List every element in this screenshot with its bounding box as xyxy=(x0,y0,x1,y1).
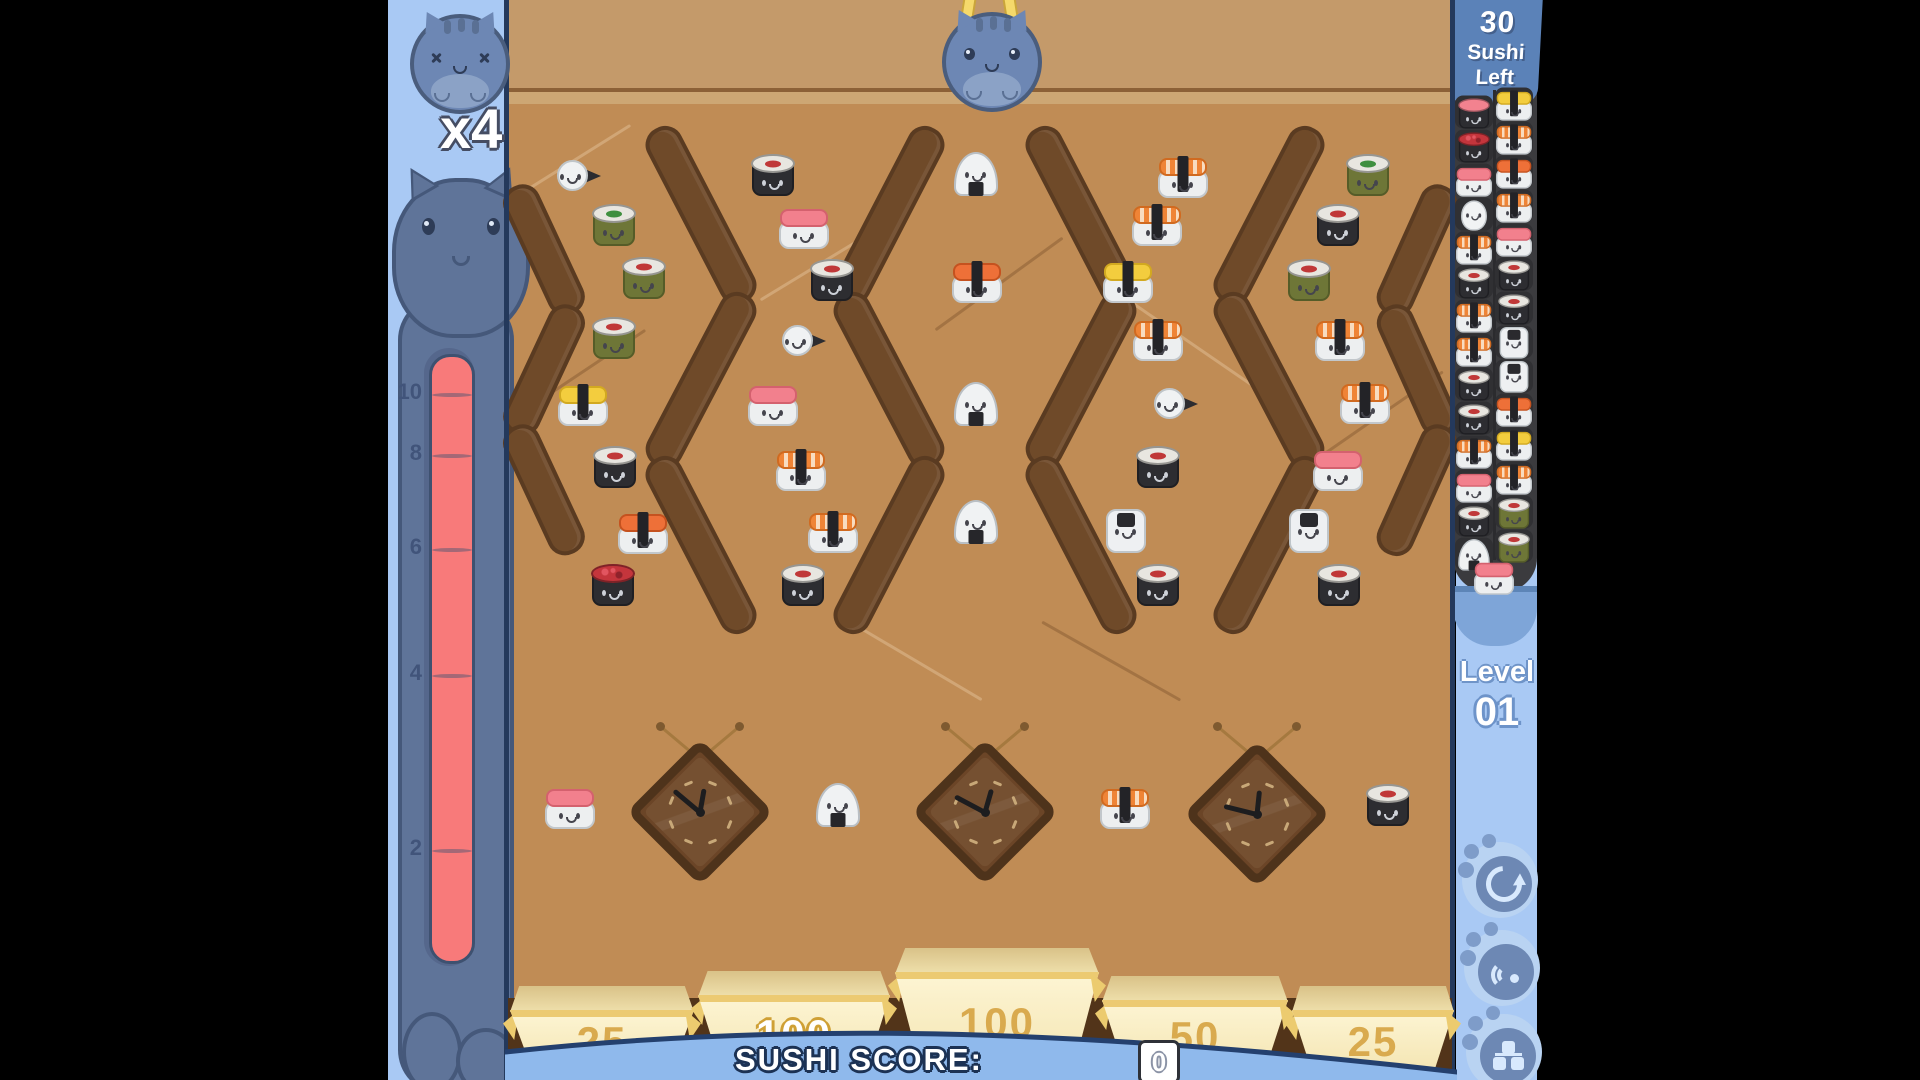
sushi-maki-green-r xyxy=(621,257,667,299)
clock-numeral-mark xyxy=(708,781,717,787)
clock-string-knob xyxy=(1213,722,1222,731)
clock-numeral-mark xyxy=(1241,840,1250,846)
sushi-left-label-2: Left xyxy=(1450,65,1539,90)
queue-item xyxy=(1495,394,1533,427)
sushi-nigiri-ebi xyxy=(1497,465,1530,495)
sushi-nigiri-ebi xyxy=(1342,382,1388,424)
sushi-maki-dark xyxy=(750,154,796,196)
cat-mouth xyxy=(985,64,999,72)
paw-bean xyxy=(1486,1006,1500,1020)
sushi-maki-green-g xyxy=(591,204,637,246)
clock-numeral-mark xyxy=(1283,798,1289,807)
cat-eye-icon xyxy=(964,48,975,60)
cat-mouth xyxy=(452,256,470,266)
queue-item xyxy=(1495,258,1533,291)
paw-pad xyxy=(1478,944,1534,1000)
sushi-nigiri-ebi xyxy=(1135,319,1181,361)
bucket-opening xyxy=(510,986,694,1012)
clock-string-knob xyxy=(735,722,744,731)
sushi-nigiri-ebi xyxy=(1457,303,1490,333)
sushi-nigiri-tamago xyxy=(560,384,606,426)
sushi-maki-dark xyxy=(1316,564,1362,606)
queue-item xyxy=(1495,462,1533,495)
clock-numeral-mark xyxy=(993,838,1002,844)
clock-numeral-mark xyxy=(684,781,693,787)
sushi-squid xyxy=(1497,329,1530,359)
sushi-squid xyxy=(1286,511,1332,553)
clock-face xyxy=(942,769,1028,855)
paw-bean xyxy=(1462,1034,1478,1050)
sushi-nigiri-orange xyxy=(1497,397,1530,427)
queue-item xyxy=(1495,496,1533,529)
bucket-opening xyxy=(1292,986,1454,1012)
sushi-maki-dark xyxy=(1365,784,1411,826)
queue-item xyxy=(1455,436,1493,469)
clock-center xyxy=(696,808,705,817)
sushi-nigiri-ebi xyxy=(1134,204,1180,246)
clock-numeral-mark xyxy=(1265,783,1274,789)
blocks-button[interactable] xyxy=(1464,1012,1544,1080)
clock-numeral-mark xyxy=(1226,822,1232,831)
sushi-maki-green-r xyxy=(1497,499,1530,529)
cat-eye-icon xyxy=(1009,48,1020,60)
queue-item xyxy=(1455,368,1493,401)
clock-numeral-mark xyxy=(669,796,675,805)
restart-button[interactable] xyxy=(1460,840,1540,920)
clock-numeral-mark xyxy=(684,838,693,844)
sushi-nigiri-ebi xyxy=(1317,319,1363,361)
sushi-temaki xyxy=(1152,384,1198,426)
cat-stripe xyxy=(990,16,997,30)
bucket-opening xyxy=(895,948,1099,974)
meter-tick-line xyxy=(432,674,472,678)
sushi-maki-dark xyxy=(1497,295,1530,325)
queue-item xyxy=(1455,470,1493,503)
queue-item xyxy=(1455,130,1493,163)
paw-bean xyxy=(1468,1016,1483,1031)
sushi-maki-dark xyxy=(1497,261,1530,291)
clock-numeral-mark xyxy=(1011,796,1017,805)
bucket-opening xyxy=(698,971,890,997)
cat-closed-eye-icon xyxy=(478,52,490,64)
cat-belly xyxy=(963,72,1021,106)
paw-bean xyxy=(1458,862,1474,878)
sushi-squid xyxy=(1103,511,1149,553)
sushi-nigiri-ebi xyxy=(1102,787,1148,829)
sushi-maki-dark xyxy=(1457,371,1490,401)
sushi-maki-green-r xyxy=(1286,259,1332,301)
paw-bean xyxy=(1460,950,1476,966)
game-screen: 251001005025 SUSHI SCORE: 0 x4 108642 30 xyxy=(0,0,1920,1080)
sushi-nigiri-orange xyxy=(954,261,1000,303)
cat-eye-icon xyxy=(487,218,500,235)
clock-string-knob xyxy=(941,722,950,731)
sushi-maki-dark xyxy=(592,446,638,488)
blocks-icon xyxy=(1491,1039,1525,1073)
sushi-squid xyxy=(1497,363,1530,393)
paw-bean xyxy=(1466,932,1481,947)
meter-tick-line xyxy=(432,393,472,397)
queue-item xyxy=(1455,232,1493,265)
sushi-nigiri-tamago xyxy=(1497,91,1530,121)
meter-tick-label: 8 xyxy=(392,440,422,466)
sushi-maki-salmon xyxy=(1457,99,1490,129)
sushi-maki-green-r xyxy=(591,317,637,359)
clock-numeral-mark xyxy=(669,820,675,829)
sushi-maki-dark xyxy=(1457,405,1490,435)
queue-item xyxy=(1455,164,1493,197)
cat-closed-eye-icon xyxy=(430,52,442,64)
cat-stripe xyxy=(472,20,479,34)
queue-item xyxy=(1495,122,1533,155)
clock-string-knob xyxy=(1020,722,1029,731)
sushi-onigiri xyxy=(953,154,999,196)
cat-mouth xyxy=(453,66,467,74)
sushi-nigiri-salmon xyxy=(1476,561,1513,595)
sushi-nigiri-salmon xyxy=(750,384,796,426)
queue-item xyxy=(1495,428,1533,461)
queue-item xyxy=(1455,96,1493,129)
sushi-left-label-1: Sushi xyxy=(1451,40,1540,65)
sushi-egg xyxy=(1457,201,1490,231)
clock-numeral-mark xyxy=(954,820,960,829)
cat-stripe xyxy=(1004,18,1011,32)
cat-stripe xyxy=(976,18,983,32)
board-right-edge xyxy=(1450,0,1455,1080)
sushi-nigiri-salmon xyxy=(1457,473,1490,503)
clock-numeral-mark xyxy=(969,781,978,787)
sushi-nigiri-ebi xyxy=(1457,439,1490,469)
sushi-nigiri-ebi xyxy=(1457,235,1490,265)
clock-numeral-mark xyxy=(1241,783,1250,789)
sushi-maki-roe xyxy=(590,564,636,606)
board-left-edge xyxy=(504,0,509,1080)
meter-tick-line xyxy=(432,548,472,552)
progress-meter xyxy=(429,354,475,964)
sushi-maki-dark xyxy=(1457,269,1490,299)
sushi-maki-roe xyxy=(1457,133,1490,163)
score-label: SUSHI SCORE: xyxy=(735,1042,983,1078)
sushi-onigiri xyxy=(953,384,999,426)
queue-item xyxy=(1495,88,1533,121)
queue-item xyxy=(1455,334,1493,367)
queue-item xyxy=(1495,190,1533,223)
sushi-temaki xyxy=(780,321,826,363)
queue-item xyxy=(1455,402,1493,435)
queue-item xyxy=(1495,326,1533,359)
sushi-nigiri-ebi xyxy=(1497,125,1530,155)
bucket-opening xyxy=(1102,976,1288,1002)
sushi-temaki xyxy=(555,156,601,198)
sushi-nigiri-salmon xyxy=(1497,227,1530,257)
queue-item xyxy=(1455,266,1493,299)
paw-bean xyxy=(1484,922,1498,936)
sushi-nigiri-salmon xyxy=(1457,167,1490,197)
clock-numeral-mark xyxy=(708,838,717,844)
sushi-nigiri-ebi xyxy=(778,449,824,491)
queue-item xyxy=(1495,292,1533,325)
cat-stripe xyxy=(444,20,451,34)
sushi-nigiri-ebi xyxy=(1160,156,1206,198)
sushi-nigiri-ebi xyxy=(810,511,856,553)
queue-item xyxy=(1495,224,1533,257)
cat-stripe xyxy=(458,18,465,32)
meter-tick-label: 4 xyxy=(392,660,422,686)
sushi-maki-dark xyxy=(809,259,855,301)
sushi-maki-green-g xyxy=(1345,154,1391,196)
queue-item xyxy=(1455,198,1493,231)
sushi-onigiri xyxy=(815,785,861,827)
clock-numeral-mark xyxy=(1011,820,1017,829)
paw-pad xyxy=(1480,1028,1536,1080)
clock-numeral-mark xyxy=(726,796,732,805)
clock-numeral-mark xyxy=(1265,840,1274,846)
meter-tick-label: 10 xyxy=(392,379,422,405)
clock-numeral-mark xyxy=(993,781,1002,787)
sushi-nigiri-ebi xyxy=(1457,337,1490,367)
meter-tick-label: 6 xyxy=(392,534,422,560)
queue-item xyxy=(1455,504,1493,537)
queue-item xyxy=(1495,156,1533,189)
sushi-maki-dark xyxy=(780,564,826,606)
clock-face xyxy=(1214,771,1300,857)
meter-tick-label: 2 xyxy=(392,835,422,861)
sushi-nigiri-tamago xyxy=(1105,261,1151,303)
queue-item xyxy=(1495,360,1533,393)
sushi-nigiri-salmon xyxy=(1315,449,1361,491)
clock-string-knob xyxy=(656,722,665,731)
sushi-left-value: 30 xyxy=(1453,6,1543,40)
clock-string-knob xyxy=(1292,722,1301,731)
meter-tick-line xyxy=(432,454,472,458)
clock-face xyxy=(657,769,743,855)
sushi-maki-green-r xyxy=(1497,533,1530,563)
drop-cat-ball[interactable] xyxy=(942,12,1042,112)
queue-item xyxy=(1455,300,1493,333)
sushi-nigiri-salmon xyxy=(781,207,827,249)
queue-item xyxy=(1495,530,1533,563)
clock-numeral-mark xyxy=(1283,822,1289,831)
sushi-maki-dark xyxy=(1457,507,1490,537)
paw-bean xyxy=(1464,844,1479,859)
paw-pad xyxy=(1476,856,1532,912)
sushi-nigiri-orange xyxy=(1497,159,1530,189)
multiplier-label: x4 xyxy=(440,96,502,161)
paw-bean xyxy=(1482,834,1496,848)
clock-center xyxy=(1253,810,1262,819)
clock-numeral-mark xyxy=(969,838,978,844)
clock-numeral-mark xyxy=(726,820,732,829)
sushi-nigiri-ebi xyxy=(1497,193,1530,223)
sound-icon xyxy=(1489,955,1523,989)
sushi-nigiri-orange xyxy=(620,512,666,554)
sushi-maki-dark xyxy=(1135,564,1181,606)
sushi-nigiri-salmon xyxy=(547,787,593,829)
sushi-maki-dark xyxy=(1135,446,1181,488)
cat-eye-icon xyxy=(422,218,435,235)
score-value: 0 xyxy=(1138,1040,1180,1080)
sushi-nigiri-tamago xyxy=(1497,431,1530,461)
sushi-onigiri xyxy=(953,502,999,544)
restart-icon xyxy=(1479,859,1530,910)
sound-button[interactable] xyxy=(1462,928,1542,1008)
meter-tick-line xyxy=(432,849,472,853)
clock-center xyxy=(981,808,990,817)
sushi-maki-dark xyxy=(1315,204,1361,246)
